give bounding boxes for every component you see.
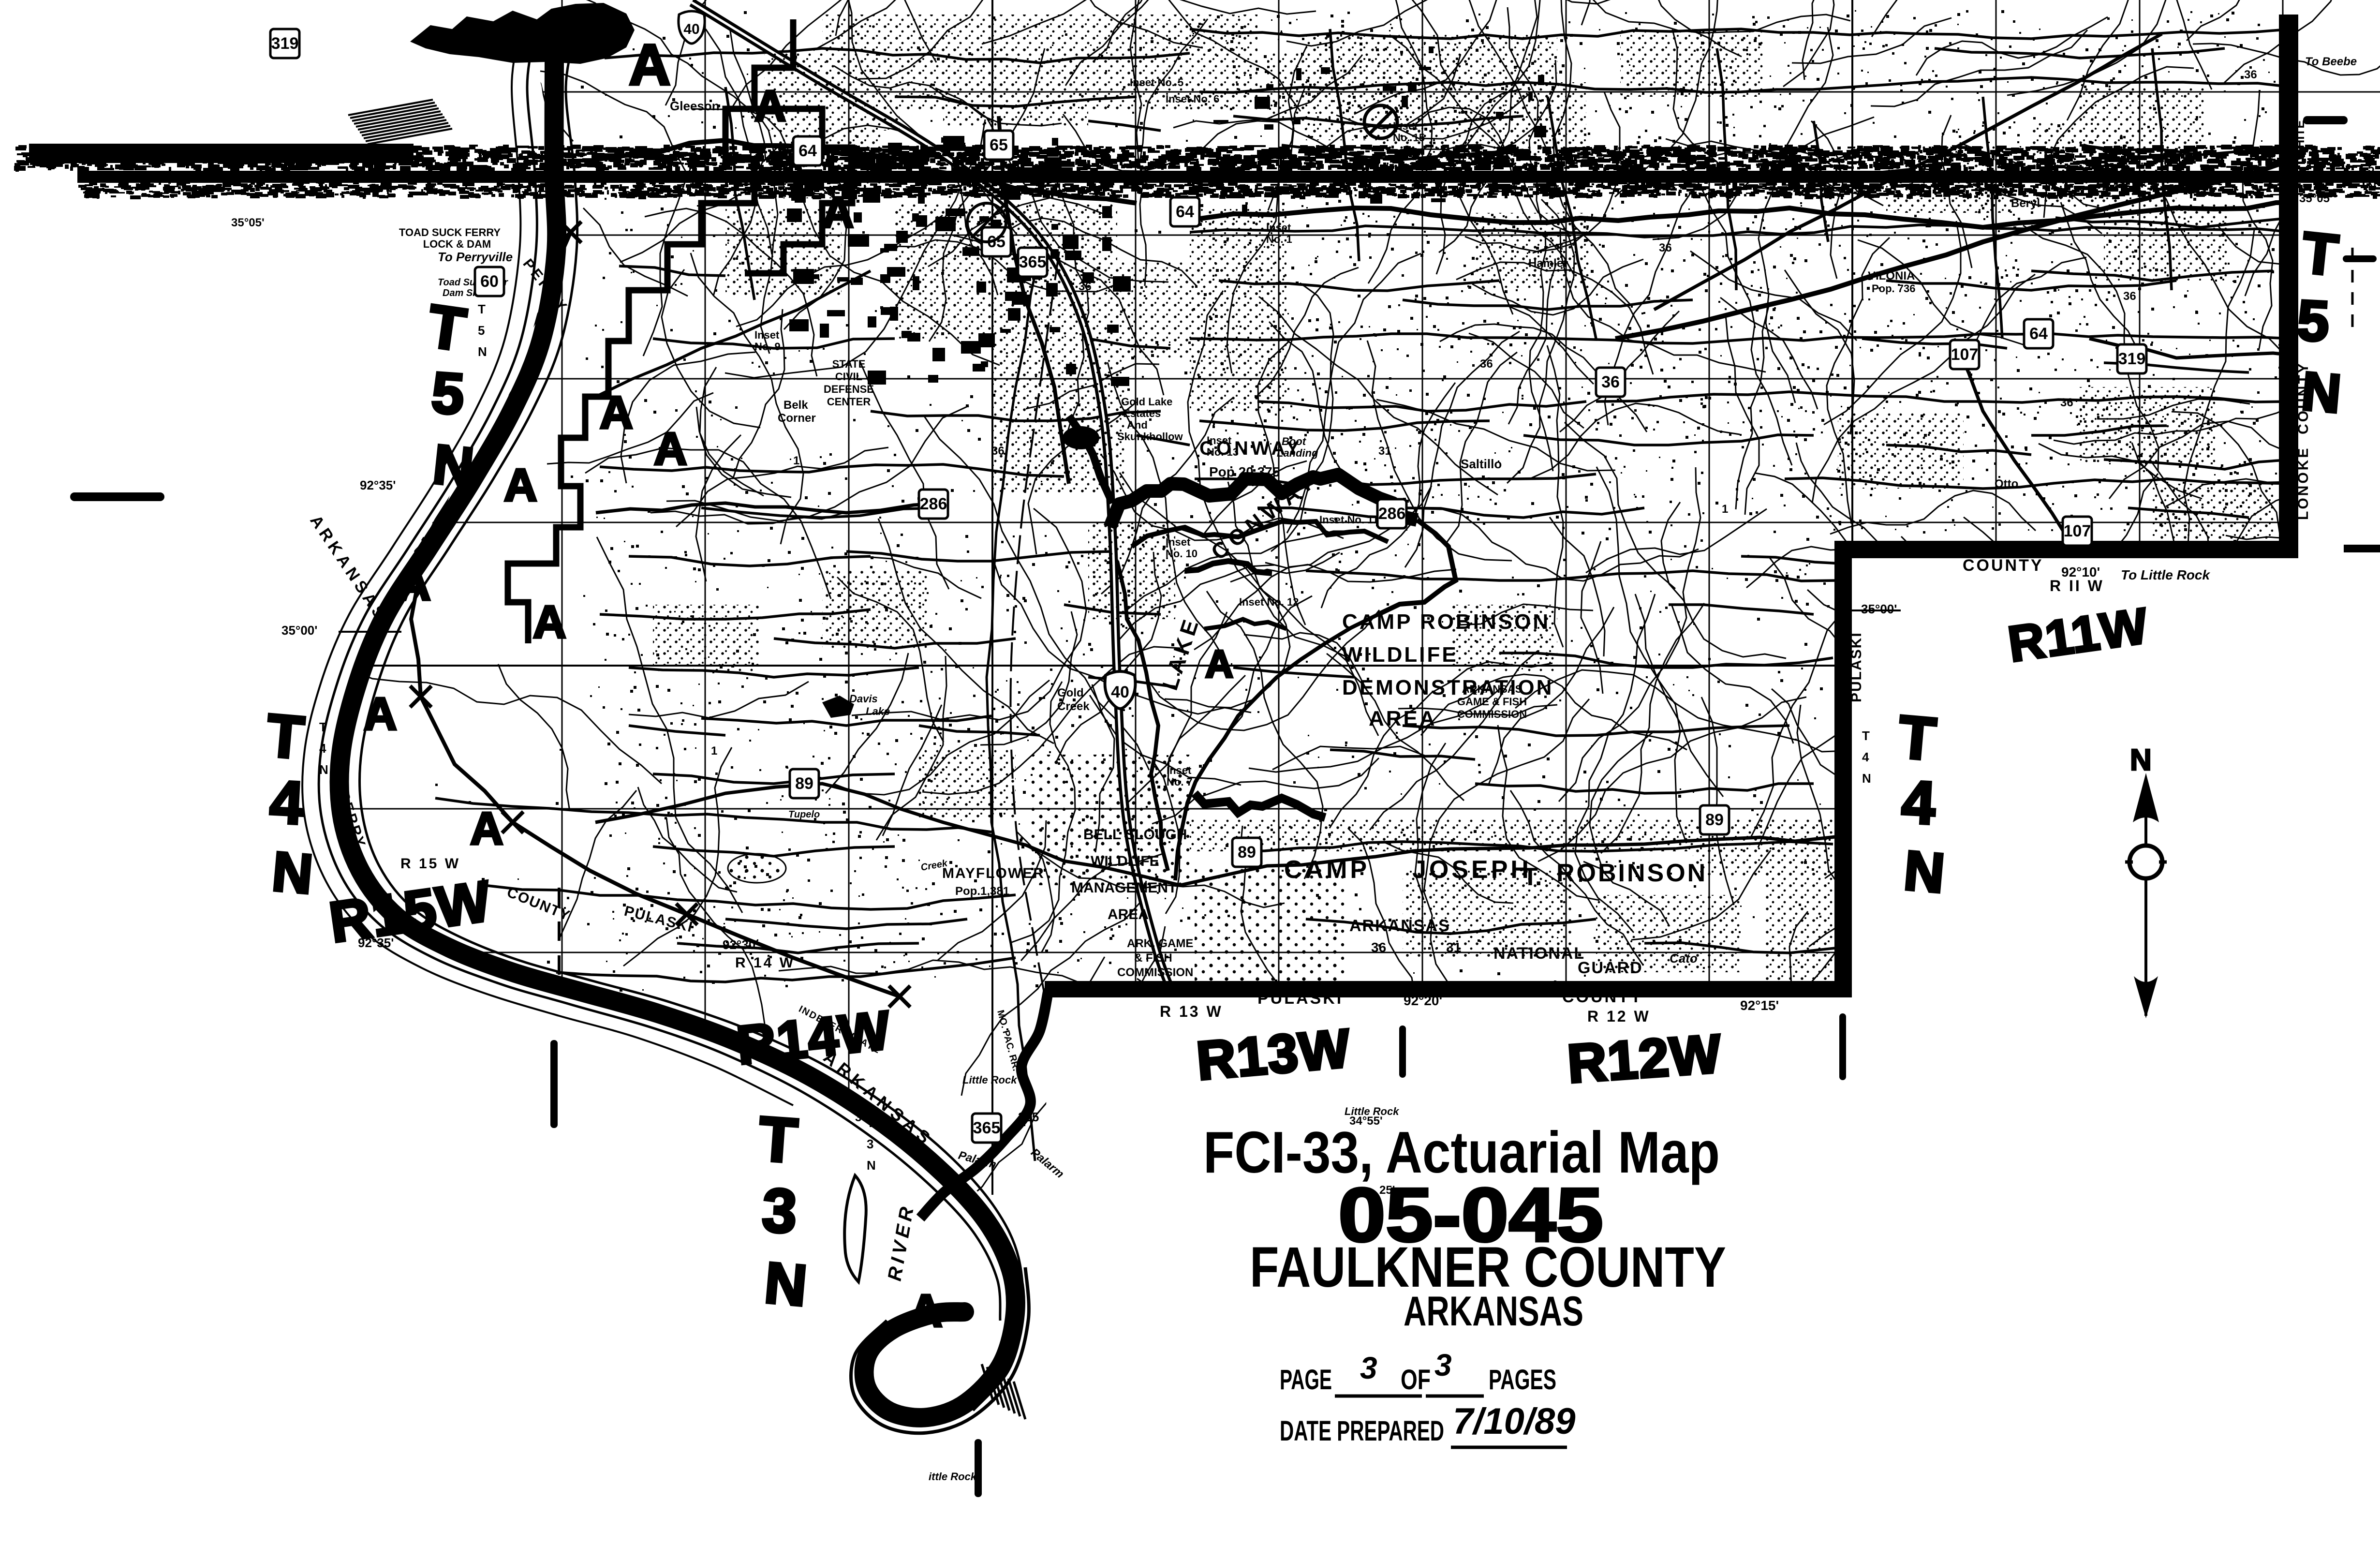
svg-text:107: 107: [2064, 522, 2091, 540]
svg-text:STATE: STATE: [832, 358, 866, 370]
svg-text:1: 1: [711, 744, 717, 758]
svg-text:DATE PREPARED: DATE PREPARED: [1280, 1415, 1444, 1447]
svg-text:Estates: Estates: [1123, 407, 1161, 419]
svg-text:Little Rock: Little Rock: [1345, 1105, 1400, 1117]
svg-text:36: 36: [1079, 280, 1092, 293]
svg-text:Inset: Inset: [754, 329, 780, 341]
svg-text:To Perryville: To Perryville: [438, 250, 513, 264]
svg-text:N: N: [319, 762, 328, 777]
svg-text:Cato: Cato: [1670, 951, 1698, 966]
svg-text:R 15 W: R 15 W: [400, 856, 460, 872]
svg-text:R 12 W: R 12 W: [1587, 1008, 1651, 1025]
svg-text:T: T: [867, 1115, 874, 1130]
svg-text:A: A: [504, 460, 537, 511]
svg-text:Saltillo: Saltillo: [1461, 457, 1502, 471]
svg-text:31: 31: [1378, 445, 1391, 458]
svg-text:JOSEPH: JOSEPH: [1412, 856, 1532, 884]
svg-text:5: 5: [429, 360, 467, 427]
svg-text:rrillton: rrillton: [576, 14, 609, 26]
svg-text:COMMISSION: COMMISSION: [1457, 708, 1527, 720]
svg-text:Hamlet: Hamlet: [1528, 257, 1567, 270]
svg-text:No. 15: No. 15: [1393, 132, 1425, 144]
svg-text:Gold: Gold: [1057, 686, 1084, 699]
svg-text:Lake: Lake: [866, 705, 890, 717]
svg-text:92°30': 92°30': [723, 937, 758, 952]
svg-text:T: T: [1862, 728, 1870, 743]
svg-text:Pop. 736: Pop. 736: [1872, 282, 1915, 295]
svg-text:No. 13: No. 13: [1207, 446, 1239, 458]
svg-text:Gleeson: Gleeson: [670, 99, 720, 113]
svg-text:ARK. GAME: ARK. GAME: [1127, 937, 1193, 950]
svg-text:36: 36: [1371, 940, 1386, 955]
svg-text:DEFENSE: DEFENSE: [824, 383, 874, 395]
svg-text:CAMP: CAMP: [1284, 856, 1370, 884]
svg-text:Inset No. 6: Inset No. 6: [1166, 93, 1219, 105]
svg-text:36: 36: [1480, 357, 1493, 371]
svg-text:A: A: [629, 32, 671, 97]
svg-text:89: 89: [1705, 811, 1724, 829]
svg-text:N: N: [867, 1158, 876, 1173]
svg-text:36: 36: [672, 183, 685, 196]
svg-text:Corner: Corner: [778, 412, 816, 425]
svg-text:36: 36: [991, 445, 1005, 458]
svg-text:Beryl: Beryl: [2011, 197, 2040, 210]
svg-text:N: N: [762, 1250, 811, 1318]
svg-text:To Little Rock: To Little Rock: [2121, 567, 2211, 582]
svg-text:A: A: [654, 423, 687, 475]
svg-text:36: 36: [2244, 68, 2257, 81]
svg-text:MANAGEMENT: MANAGEMENT: [1071, 880, 1177, 896]
svg-text:CIVIL: CIVIL: [835, 371, 862, 383]
svg-text:N: N: [2299, 360, 2344, 424]
svg-text:A: A: [754, 82, 786, 131]
svg-text:& FISH: & FISH: [1134, 951, 1172, 965]
svg-text:Inset: Inset: [1167, 764, 1192, 776]
svg-text:286: 286: [1378, 505, 1406, 523]
svg-text:T: T: [478, 302, 486, 316]
svg-text:And: And: [1127, 419, 1148, 431]
svg-text:PAGES: PAGES: [1489, 1364, 1556, 1396]
svg-text:36: 36: [2060, 396, 2073, 409]
svg-text:ROBINSON: ROBINSON: [1556, 859, 1707, 887]
svg-text:Pop 20,375: Pop 20,375: [1209, 464, 1280, 479]
svg-text:35°05': 35°05': [2299, 192, 2333, 205]
svg-text:ARKANSAS: ARKANSAS: [1462, 683, 1523, 695]
svg-text:40: 40: [683, 21, 699, 37]
svg-text:BELL SLOUGH: BELL SLOUGH: [1083, 827, 1187, 843]
svg-text:NATIONAL: NATIONAL: [1493, 944, 1585, 963]
svg-text:Inset: Inset: [1266, 222, 1291, 234]
svg-text:A: A: [398, 559, 431, 610]
svg-text:64: 64: [1176, 203, 1194, 221]
svg-text:MAYFLOWER: MAYFLOWER: [942, 865, 1045, 881]
svg-text:92°35': 92°35': [360, 478, 396, 492]
svg-text:COMMISSION: COMMISSION: [1117, 966, 1193, 979]
svg-text:R II W: R II W: [2050, 577, 2104, 594]
svg-text:40: 40: [1111, 683, 1129, 701]
svg-text:T: T: [319, 720, 327, 734]
svg-text:GUARD: GUARD: [1578, 959, 1643, 977]
svg-text:Pop.1,381: Pop.1,381: [955, 885, 1009, 898]
svg-text:65: 65: [990, 136, 1008, 154]
svg-text:Inset: Inset: [1207, 434, 1232, 446]
svg-text:365: 365: [1019, 253, 1047, 271]
svg-text:T.: T.: [1523, 863, 1542, 891]
svg-text:Belk: Belk: [783, 399, 808, 412]
svg-text:4: 4: [1900, 768, 1938, 837]
svg-text:A: A: [600, 387, 633, 438]
svg-text:N: N: [430, 433, 477, 499]
svg-text:N: N: [2368, 180, 2376, 193]
svg-text:36: 36: [1659, 241, 1672, 254]
svg-text:To: To: [595, 2, 607, 15]
svg-text:CENTER: CENTER: [827, 396, 871, 408]
svg-text:COUNTY: COUNTY: [1562, 988, 1643, 1006]
svg-text:A: A: [822, 189, 854, 237]
svg-text:1: 1: [1925, 217, 1931, 230]
svg-text:319: 319: [271, 34, 299, 53]
svg-text:Skunkhollow: Skunkhollow: [1117, 431, 1183, 443]
svg-text:N: N: [1902, 839, 1948, 905]
svg-text:365: 365: [973, 1119, 1001, 1137]
svg-text:PAGE: PAGE: [1280, 1364, 1332, 1396]
svg-text:Otto: Otto: [1995, 477, 2018, 490]
svg-text:Inset: Inset: [1166, 536, 1191, 548]
svg-text:T: T: [756, 1103, 800, 1176]
svg-text:4: 4: [319, 741, 326, 756]
svg-text:AREA: AREA: [1369, 707, 1437, 730]
svg-text:To Beebe: To Beebe: [2305, 55, 2357, 68]
svg-text:5: 5: [2368, 162, 2374, 175]
svg-text:36: 36: [2123, 290, 2136, 303]
svg-text:1: 1: [1722, 503, 1728, 516]
svg-text:92°15': 92°15': [1740, 998, 1779, 1013]
svg-text:LOCK & DAM: LOCK & DAM: [423, 238, 491, 250]
svg-text:A: A: [1205, 642, 1233, 685]
svg-text:A: A: [364, 688, 397, 740]
svg-text:COUNTY: COUNTY: [1963, 556, 2044, 575]
svg-text:TOAD SUCK FERRY: TOAD SUCK FERRY: [399, 226, 501, 238]
svg-text:89: 89: [1238, 843, 1256, 862]
svg-text:OF: OF: [1401, 1364, 1431, 1396]
svg-text:ARKANSAS: ARKANSAS: [1349, 917, 1450, 935]
svg-text:5: 5: [478, 323, 485, 338]
svg-text:Inset No. 11: Inset No. 11: [1319, 514, 1378, 526]
svg-text:WILDLIFE: WILDLIFE: [1091, 853, 1159, 869]
svg-text:ARKANSAS: ARKANSAS: [1404, 1288, 1583, 1335]
svg-text:N: N: [270, 840, 316, 906]
svg-text:No. 1: No. 1: [1266, 233, 1292, 245]
svg-text:No. 9: No. 9: [754, 341, 781, 353]
svg-text:CAMP ROBINSON: CAMP ROBINSON: [1342, 610, 1550, 634]
svg-text:64: 64: [2029, 325, 2048, 343]
svg-text:T: T: [1896, 703, 1939, 773]
svg-text:N: N: [2130, 743, 2152, 777]
svg-text:PULASKI: PULASKI: [1848, 632, 1864, 702]
svg-text:64: 64: [798, 142, 817, 160]
svg-text:WILDLIFE: WILDLIFE: [1342, 643, 1458, 667]
svg-text:286: 286: [920, 495, 947, 513]
svg-text:ittle Rock: ittle Rock: [929, 1471, 977, 1483]
svg-text:Landing: Landing: [1277, 447, 1318, 459]
svg-text:89: 89: [795, 774, 813, 793]
svg-text:N: N: [1862, 771, 1871, 786]
svg-text:No. 10: No. 10: [1166, 548, 1197, 560]
svg-text:T: T: [2368, 144, 2375, 157]
svg-text:319: 319: [2118, 350, 2146, 368]
svg-text:92°20': 92°20': [1404, 993, 1442, 1008]
svg-text:Little Rock: Little Rock: [962, 1074, 1018, 1086]
svg-text:R 13 W: R 13 W: [1160, 1003, 1223, 1020]
svg-text:GAME & FISH: GAME & FISH: [1457, 696, 1527, 708]
svg-text:Inset No. 12: Inset No. 12: [1239, 596, 1299, 608]
svg-text:3: 3: [867, 1137, 873, 1151]
svg-text:60: 60: [480, 272, 499, 291]
svg-text:107: 107: [1951, 345, 1979, 364]
svg-text:T: T: [2299, 220, 2342, 288]
svg-text:Gold Lake: Gold Lake: [1121, 396, 1172, 408]
svg-text:36: 36: [1601, 373, 1620, 391]
svg-text:VILONIA: VILONIA: [1868, 269, 1915, 282]
svg-text:4: 4: [268, 768, 307, 837]
svg-text:T: T: [264, 701, 308, 772]
svg-text:1: 1: [793, 454, 799, 467]
svg-text:No. 7: No. 7: [1167, 776, 1193, 788]
svg-text:4: 4: [1862, 750, 1869, 764]
svg-text:Creek: Creek: [1057, 700, 1090, 713]
svg-text:R12W: R12W: [1566, 1023, 1724, 1094]
svg-text:3: 3: [761, 1175, 800, 1247]
svg-text:Boot: Boot: [1282, 435, 1307, 447]
svg-text:35°00': 35°00': [281, 623, 317, 638]
svg-text:A: A: [909, 1285, 943, 1337]
svg-text:Inset No. 5: Inset No. 5: [1130, 76, 1183, 89]
svg-text:A: A: [533, 596, 566, 648]
svg-text:A: A: [470, 803, 503, 854]
svg-text:7/10/89: 7/10/89: [1453, 1401, 1576, 1442]
svg-text:Davis: Davis: [849, 693, 878, 705]
svg-text:PULASKI: PULASKI: [1257, 989, 1343, 1008]
svg-text:N: N: [478, 344, 487, 359]
svg-text:35°05': 35°05': [231, 216, 265, 229]
svg-text:R 14 W: R 14 W: [735, 955, 795, 971]
svg-text:31: 31: [1446, 940, 1461, 955]
svg-text:3: 3: [1434, 1348, 1452, 1382]
svg-text:35°00': 35°00': [1861, 602, 1897, 616]
svg-text:5: 5: [2296, 288, 2332, 354]
svg-text:Tupelo: Tupelo: [788, 809, 820, 820]
svg-text:365: 365: [1018, 1110, 1039, 1124]
svg-text:WHITE: WHITE: [2292, 120, 2307, 161]
svg-text:AREA: AREA: [1108, 906, 1149, 922]
svg-text:3: 3: [1360, 1351, 1377, 1385]
